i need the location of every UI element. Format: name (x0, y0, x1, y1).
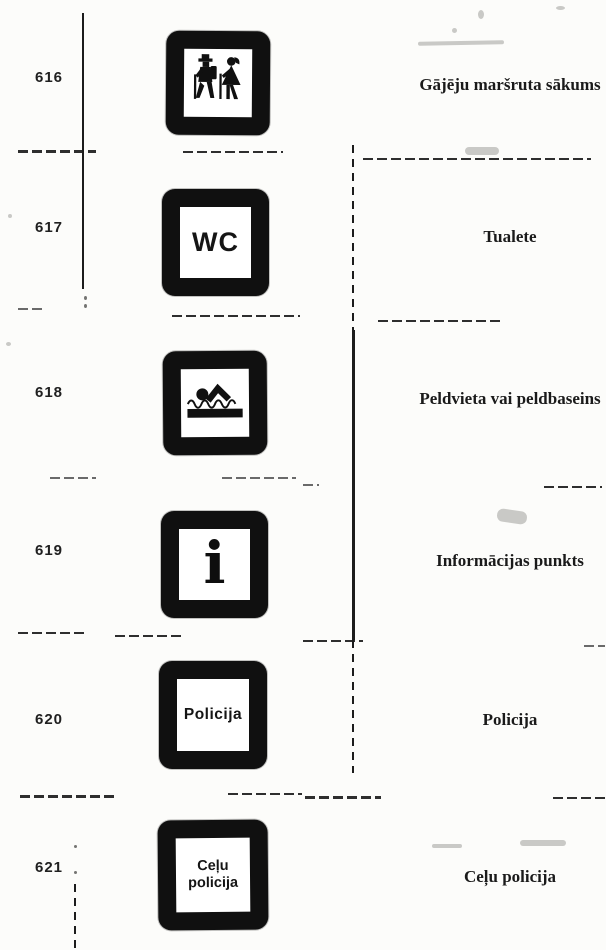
row-separator (584, 645, 605, 647)
row-separator (303, 640, 363, 642)
row-separator (553, 797, 606, 799)
rule-dot (84, 296, 87, 300)
traffic-police-plate-icon: Ceļu policija (188, 858, 238, 892)
scan-artifact (478, 10, 484, 19)
traffic-police-line2: policija (188, 875, 238, 892)
row-separator (363, 158, 591, 160)
sign-description-616: Gājēju maršruta sākums (400, 74, 606, 96)
scan-artifact (418, 40, 504, 46)
scan-artifact (452, 28, 457, 33)
scan-artifact (8, 214, 12, 218)
scan-artifact (6, 342, 11, 346)
row-separator (20, 795, 116, 798)
rule-dot (74, 845, 77, 848)
row-separator (18, 632, 88, 634)
sign-plate-621: Ceļu policija (158, 820, 269, 931)
sign-description-617: Tualete (400, 226, 606, 248)
row-separator (18, 150, 96, 153)
sign-plate-616 (166, 31, 271, 136)
bottom-left-rule (74, 884, 76, 950)
sign-description-619: Informācijas punkts (400, 550, 606, 572)
middle-column-rule-top (352, 145, 354, 330)
row-separator (378, 320, 500, 322)
traffic-police-line1: Ceļu (188, 858, 238, 875)
scan-artifact (496, 508, 528, 525)
row-separator (50, 477, 96, 479)
scan-artifact (432, 844, 462, 848)
swimmer-icon (184, 381, 246, 425)
sign-plate-617: WC (162, 189, 269, 296)
rule-dot (84, 304, 87, 308)
sign-number-617: 617 (24, 219, 74, 237)
sign-description-618: Peldvieta vai peldbaseins (400, 388, 606, 410)
row-separator (305, 796, 381, 799)
middle-column-rule-bottom (352, 640, 354, 773)
row-separator (222, 477, 296, 479)
middle-column-rule (352, 330, 355, 640)
scanned-sign-catalogue-page: 616 Gājēju maršruta sākums 617 WC Tualet… (0, 0, 606, 950)
sign-plate-619: i (161, 511, 268, 618)
sign-number-618: 618 (24, 384, 74, 402)
scan-artifact (556, 6, 565, 10)
sign-description-620: Policija (400, 709, 606, 731)
sign-number-621: 621 (24, 859, 74, 877)
sign-plate-620: Policija (159, 661, 267, 769)
rule-dot (74, 871, 77, 874)
row-separator (183, 151, 283, 153)
sign-number-620: 620 (24, 711, 74, 729)
scan-artifact (465, 147, 499, 155)
wc-sign-icon: WC (192, 227, 239, 258)
sign-number-616: 616 (24, 69, 74, 87)
sign-description-621: Ceļu policija (400, 866, 606, 888)
row-separator (303, 484, 319, 486)
row-separator (18, 308, 42, 310)
hikers-icon (186, 51, 250, 115)
police-plate-icon: Policija (184, 706, 242, 724)
information-icon: i (203, 534, 225, 592)
scan-artifact (520, 840, 566, 846)
row-separator (172, 315, 300, 317)
sign-plate-618 (163, 351, 268, 456)
row-separator (544, 486, 602, 488)
row-separator (228, 793, 302, 795)
sign-number-619: 619 (24, 542, 74, 560)
row-separator (115, 635, 185, 637)
